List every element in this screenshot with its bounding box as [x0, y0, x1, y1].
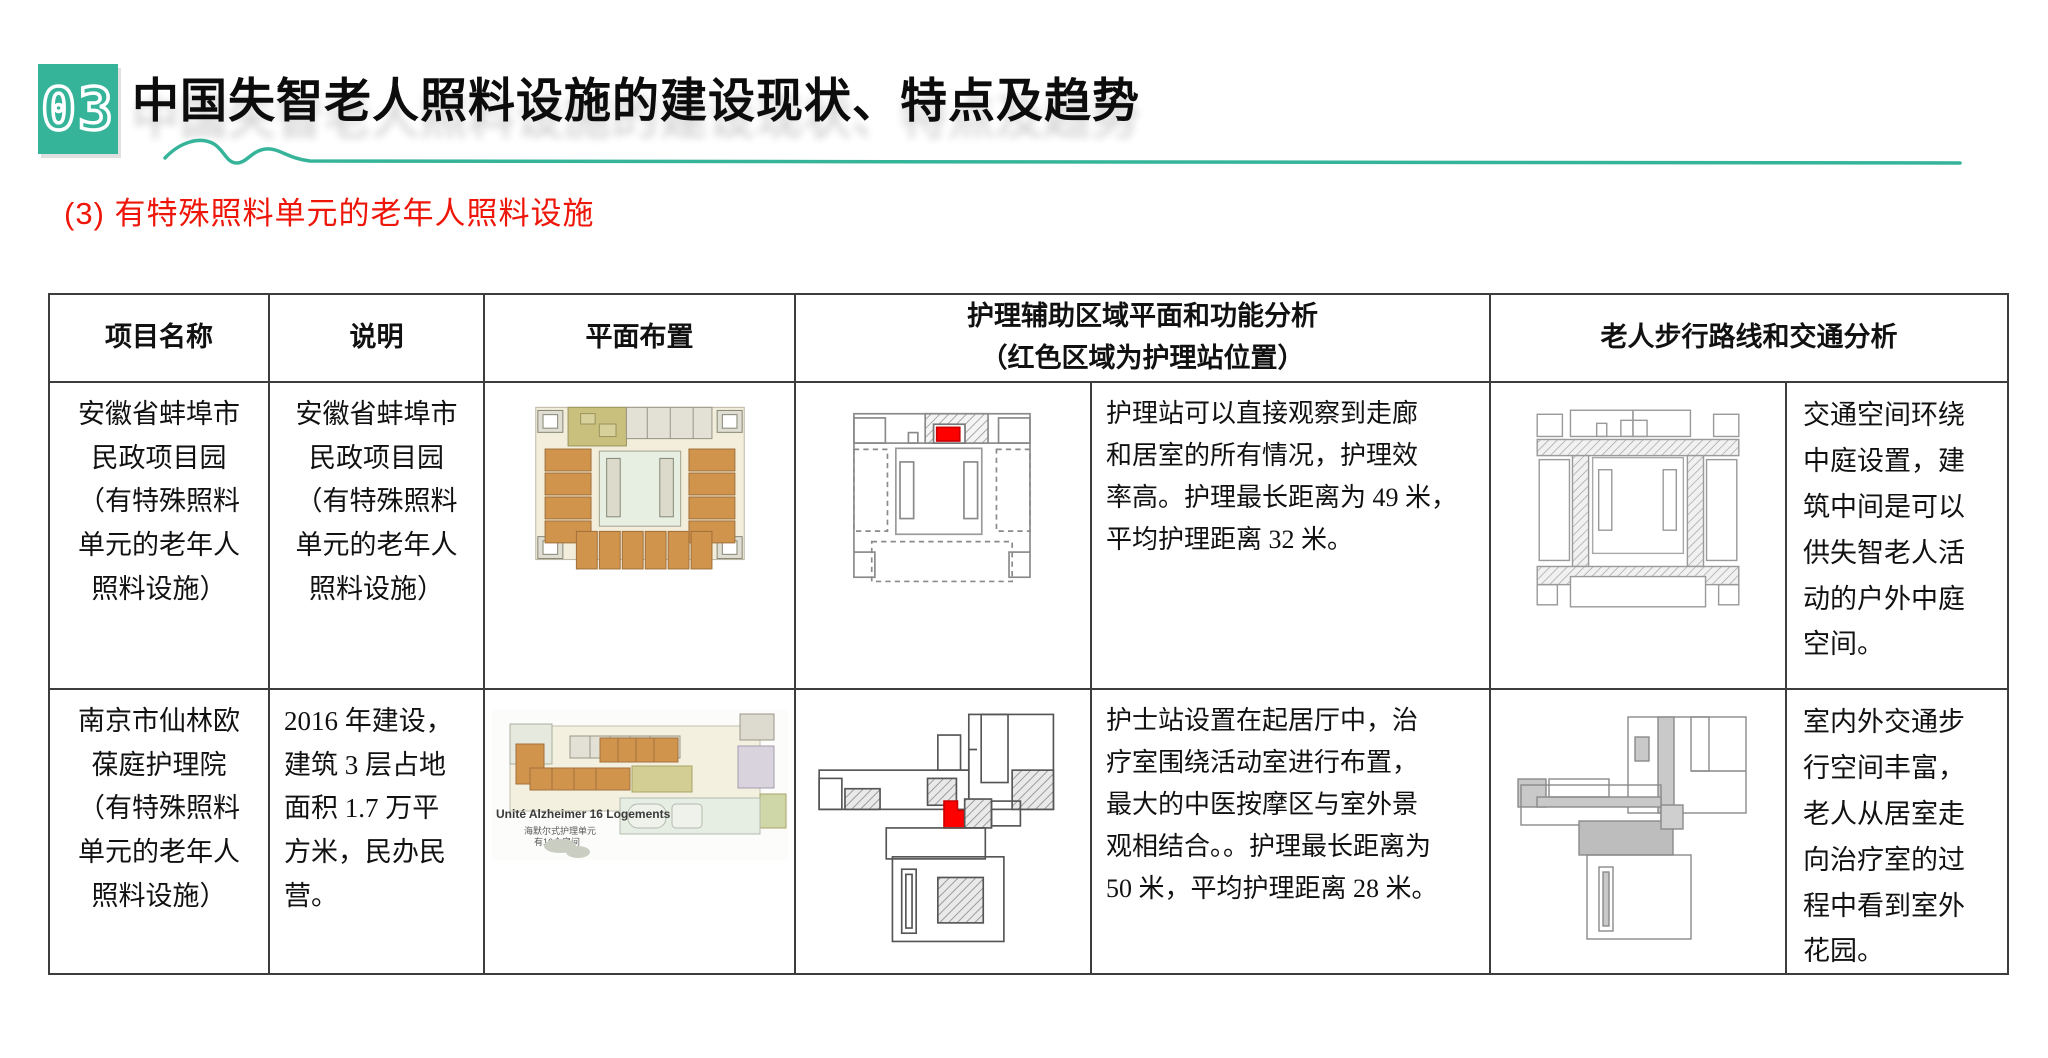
column-header-nursing-analysis: 护理辅助区域平面和功能分析 （红色区域为护理站位置） — [796, 295, 1491, 383]
nursing-diagram-image — [814, 706, 1072, 954]
walking-diagram-image — [1513, 706, 1763, 950]
nursing-analysis-diagram — [796, 690, 1092, 975]
description-cell: 安徽省蚌埠市 民政项目园 （有特殊照料 单元的老年人 照料设施） — [270, 383, 485, 690]
floor-plan-image — [520, 399, 760, 595]
slide: 03 中国失智老人照料设施的建设现状、特点及趋势 (3) 有特殊照料单元的老年人… — [0, 0, 2048, 1058]
projects-table: 项目名称 说明 平面布置 护理辅助区域平面和功能分析 （红色区域为护理站位置） … — [48, 293, 2009, 975]
column-header-walking-analysis: 老人步行路线和交通分析 — [1491, 295, 2009, 383]
title-underline-squiggle — [0, 128, 2048, 178]
floor-plan-cell — [485, 383, 796, 690]
floor-plan-cell: Unité Alzheimer 16 Logements 海默尔式护理单元 有1… — [485, 690, 796, 975]
description-cell: 2016 年建设， 建筑 3 层占地 面积 1.7 万平 方米，民办民 营。 — [270, 690, 485, 975]
column-header-description: 说明 — [270, 295, 485, 383]
column-header-floor-plan: 平面布置 — [485, 295, 796, 383]
nursing-analysis-text: 护士站设置在起居厅中，治 疗室围绕活动室进行布置， 最大的中医按摩区与室外景 观… — [1092, 690, 1491, 975]
nursing-analysis-text: 护理站可以直接观察到走廊 和居室的所有情况，护理效 率高。护理最长距离为 49 … — [1092, 383, 1491, 690]
nursing-analysis-diagram — [796, 383, 1092, 690]
nursing-station-marker — [944, 801, 965, 828]
nursing-station-marker — [937, 427, 960, 441]
floor-plan-image: Unité Alzheimer 16 Logements 海默尔式护理单元 有1… — [490, 706, 790, 866]
walking-diagram-image — [1512, 399, 1764, 611]
floor-plan-label: Unité Alzheimer 16 Logements — [496, 807, 671, 821]
walking-analysis-text: 交通空间环绕 中庭设置，建 筑中间是可以 供失智老人活 动的户外中庭 空间。 — [1787, 383, 2009, 690]
project-name-cell: 安徽省蚌埠市 民政项目园 （有特殊照料 单元的老年人 照料设施） — [50, 383, 270, 690]
nursing-diagram-image — [812, 399, 1074, 614]
floor-plan-caption: 海默尔式护理单元 — [524, 825, 596, 836]
page-title: 中国失智老人照料设施的建设现状、特点及趋势 — [132, 62, 1832, 131]
column-header-project-name: 项目名称 — [50, 295, 270, 383]
walking-analysis-text: 室内外交通步 行空间丰富， 老人从居室走 向治疗室的过 程中看到室外 花园。 — [1787, 690, 2009, 975]
section-subtitle: (3) 有特殊照料单元的老年人照料设施 — [64, 188, 595, 233]
walking-analysis-diagram — [1491, 690, 1787, 975]
project-name-cell: 南京市仙林欧 葆庭护理院 （有特殊照料 单元的老年人 照料设施） — [50, 690, 270, 975]
walking-analysis-diagram — [1491, 383, 1787, 690]
